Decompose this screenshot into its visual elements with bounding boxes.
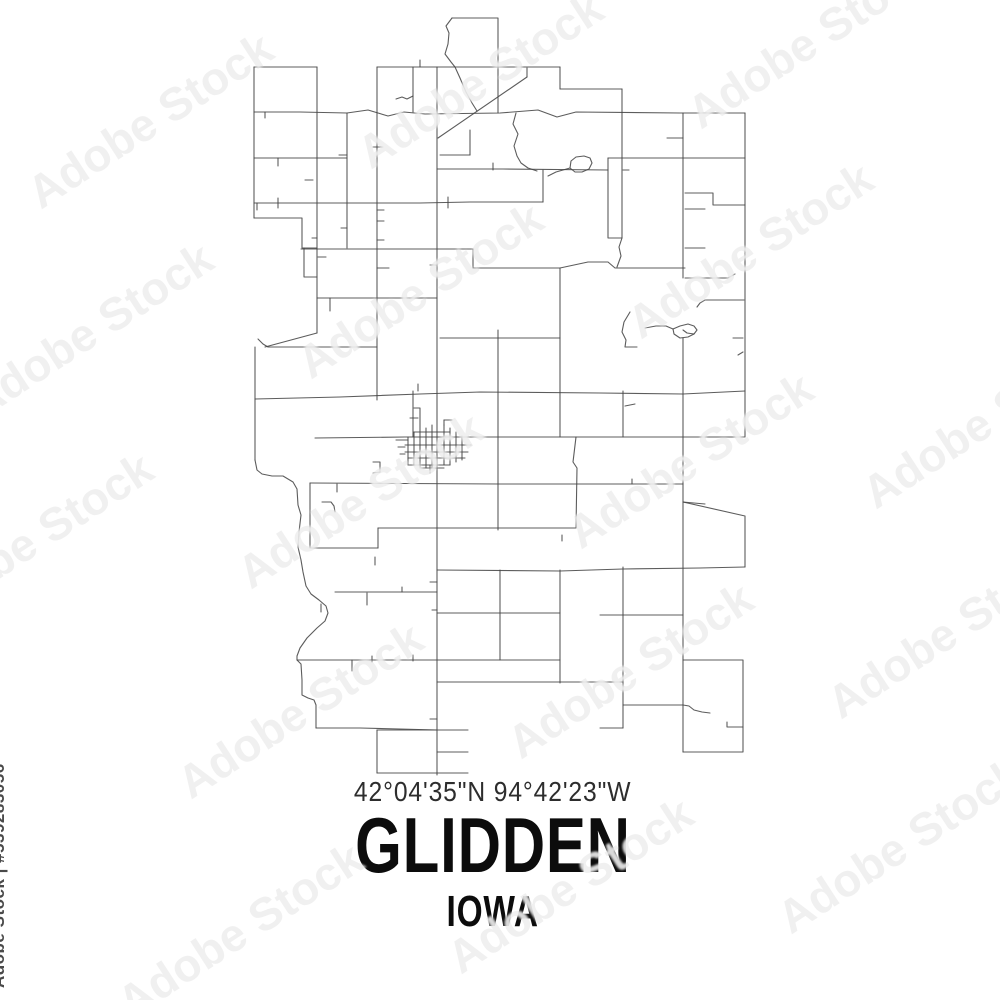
road-line bbox=[258, 339, 377, 347]
road-line bbox=[683, 502, 745, 567]
road-line bbox=[254, 202, 543, 203]
road-line bbox=[608, 158, 622, 267]
road-line bbox=[310, 483, 683, 484]
road-line bbox=[255, 391, 745, 399]
road-line bbox=[622, 312, 637, 347]
road-line bbox=[438, 77, 527, 138]
road-line bbox=[683, 705, 710, 713]
road-line bbox=[437, 169, 608, 170]
road-line bbox=[315, 437, 745, 438]
road-line bbox=[513, 113, 537, 171]
road-line bbox=[473, 262, 685, 268]
road-line bbox=[445, 18, 477, 111]
street-map bbox=[0, 0, 1000, 1000]
road-line bbox=[727, 722, 743, 727]
poster-canvas: 42°04'35"N 94°42'23"W GLIDDEN IOWA Adobe… bbox=[0, 0, 1000, 1000]
road-line bbox=[452, 18, 498, 113]
road-line bbox=[255, 460, 328, 660]
road-line bbox=[396, 96, 413, 99]
road-line bbox=[254, 110, 745, 117]
road-line bbox=[304, 248, 317, 277]
road-line bbox=[685, 193, 745, 205]
road-line bbox=[697, 300, 744, 307]
road-line bbox=[683, 660, 743, 752]
road-line bbox=[437, 567, 745, 571]
road-line bbox=[685, 274, 735, 278]
road-line bbox=[414, 408, 420, 432]
road-line bbox=[322, 502, 335, 512]
road-line bbox=[738, 352, 743, 355]
road-line bbox=[573, 437, 577, 528]
road-line bbox=[373, 462, 380, 473]
road-line bbox=[625, 404, 635, 406]
road-line bbox=[254, 218, 317, 248]
road-line bbox=[645, 324, 697, 334]
road-line bbox=[265, 333, 317, 347]
road-line bbox=[297, 660, 316, 728]
